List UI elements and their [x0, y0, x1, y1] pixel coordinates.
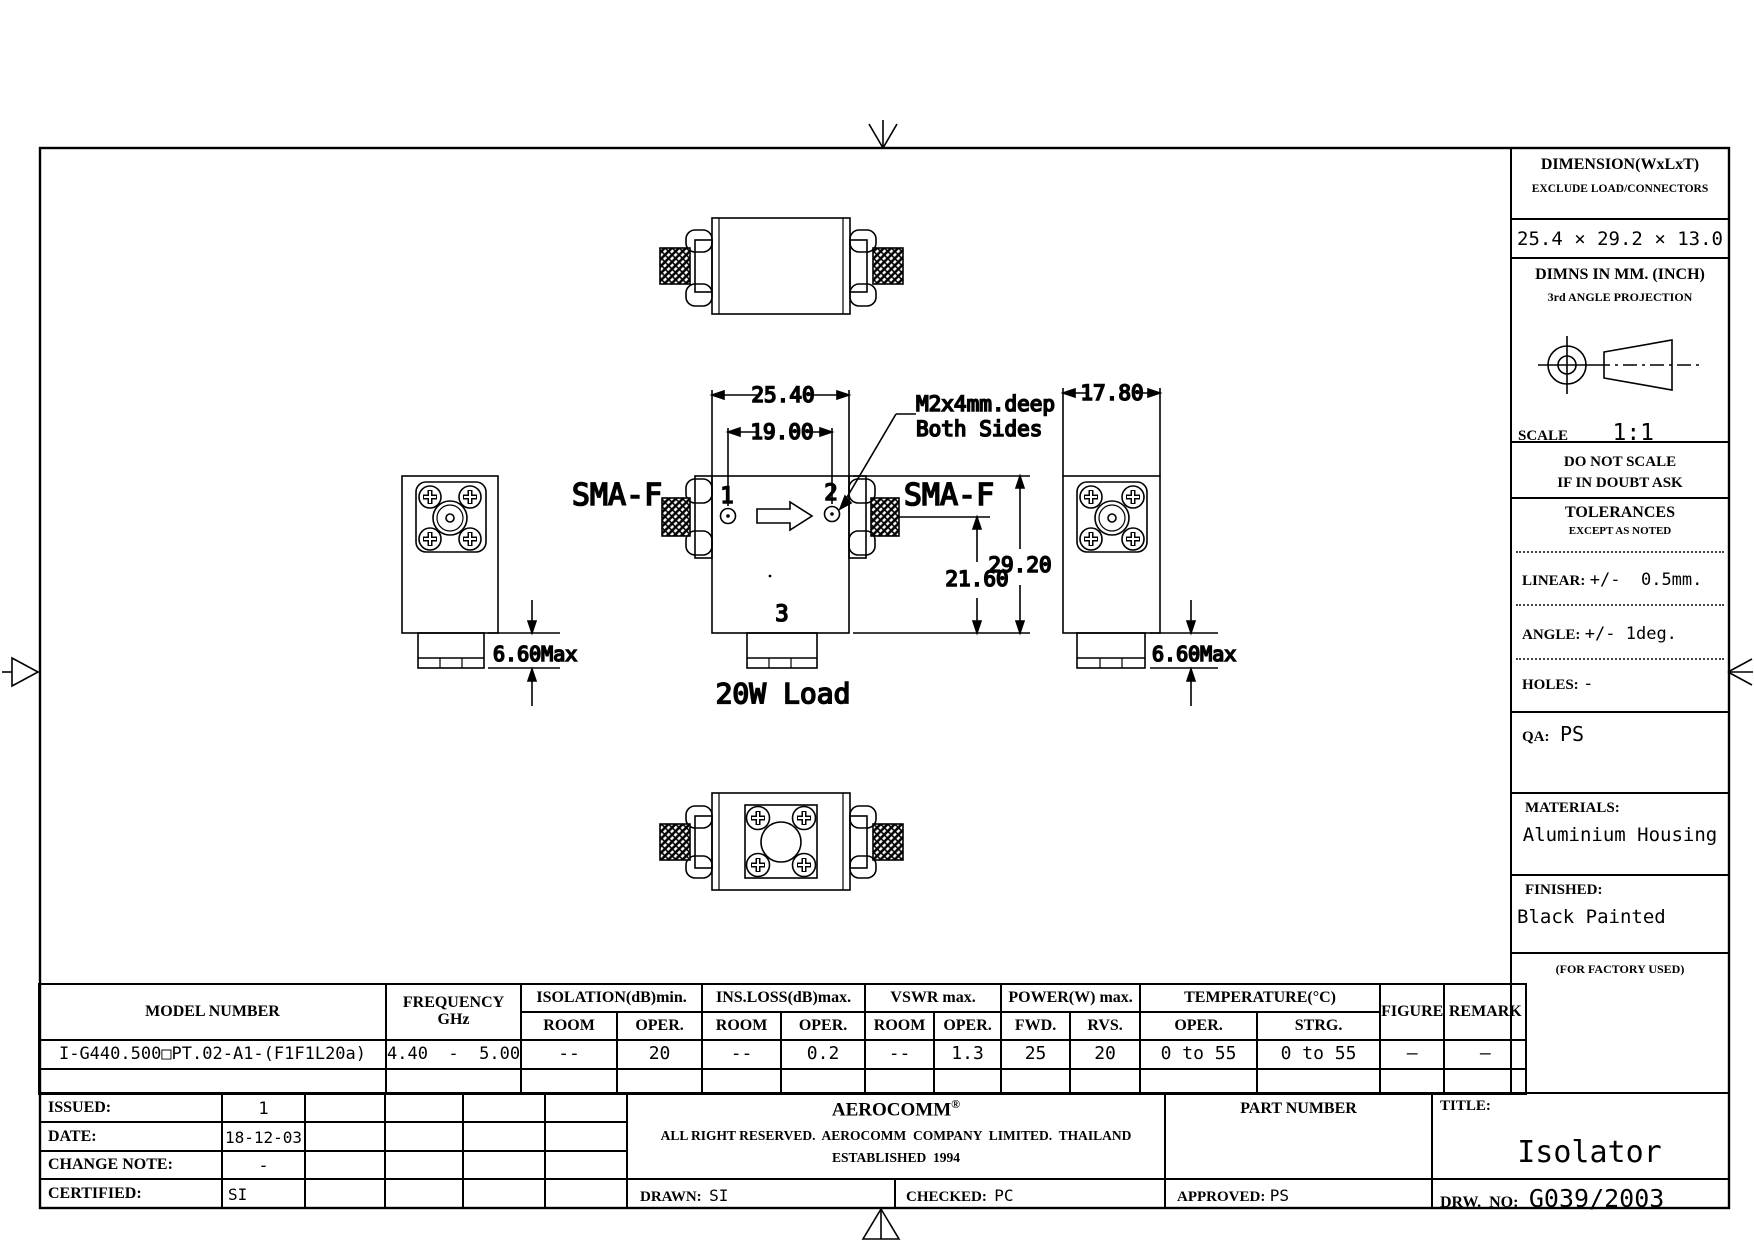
do-not-scale-line2: IF IN DOUBT ASK — [1511, 473, 1729, 494]
qa-value: PS — [1560, 722, 1584, 746]
subhead: OPER. — [617, 1012, 702, 1040]
drw-no-value: G039/2003 — [1529, 1184, 1664, 1213]
dimension-title: DIMENSION(WxLxT) — [1511, 156, 1729, 174]
issued-label: ISSUED: — [48, 1099, 111, 1117]
panel-dimns: DIMNS IN MM. (INCH) 3rd ANGLE PROJECTION — [1511, 266, 1729, 305]
centering-mark-bottom-icon — [863, 1209, 899, 1239]
col-model-number: MODEL NUMBER — [39, 984, 386, 1040]
spec-value: -- — [702, 1040, 781, 1069]
approved-row: APPROVED: PS — [1177, 1186, 1289, 1206]
dim-21-60: 21.60 — [945, 517, 1008, 633]
company-name-row: AEROCOMM® — [627, 1097, 1165, 1121]
flange-screw-icon — [1080, 486, 1144, 550]
dim-hole-spacing: 19.00 — [750, 420, 813, 444]
spec-table: MODEL NUMBER FREQUENCY GHz ISOLATION(dB)… — [38, 983, 1527, 1095]
centering-mark-top-icon — [869, 120, 897, 148]
checked-row: CHECKED: PC — [906, 1186, 1014, 1206]
port-2-label: 2 — [824, 481, 837, 506]
dim-side-width: 17.80 — [1080, 381, 1143, 405]
title-label: TITLE: — [1440, 1098, 1491, 1115]
hole-note-line1: M2x4mm.deep — [916, 392, 1055, 416]
materials-label: MATERIALS: — [1525, 800, 1729, 817]
scale-row: SCALE 1:1 — [1518, 420, 1718, 446]
dim-19-00: 19.00 — [728, 420, 832, 506]
third-angle-projection-icon — [1538, 336, 1704, 394]
frequency-value: 4.40 - 5.00 — [386, 1040, 521, 1069]
dimension-sub: EXCLUDE LOAD/CONNECTORS — [1511, 183, 1729, 195]
dim-stub-right: 6.60Max — [1152, 642, 1236, 666]
drawn-value: SI — [709, 1186, 728, 1205]
date-value: 18-12-03 — [222, 1128, 305, 1147]
qa-row: QA: PS — [1522, 722, 1584, 746]
panel-tolerances: TOLERANCES EXCEPT AS NOTED — [1511, 504, 1729, 537]
holes-value: - — [1583, 674, 1593, 694]
empty-cell — [1070, 1069, 1140, 1094]
centering-mark-right-icon — [1728, 659, 1753, 685]
empty-cell — [1001, 1069, 1070, 1094]
finished-value: Black Painted — [1517, 906, 1729, 928]
tolerances-sub: EXCEPT AS NOTED — [1511, 525, 1729, 537]
empty-cell — [39, 1069, 386, 1094]
signal-direction-arrow-icon — [757, 502, 812, 530]
figure-value: — — [1380, 1040, 1444, 1069]
dotted-divider — [1516, 604, 1724, 606]
change-note-value: - — [222, 1156, 305, 1176]
col-group-power: POWER(W) max. — [1001, 984, 1140, 1012]
load-screw-icon — [747, 807, 816, 877]
dimns-sub: 3rd ANGLE PROJECTION — [1511, 290, 1729, 305]
dim-width-outer: 25.40 — [751, 383, 814, 407]
title-value: Isolator — [1450, 1135, 1729, 1170]
materials-value: Aluminium Housing — [1511, 824, 1729, 846]
part-number-label: PART NUMBER — [1165, 1100, 1432, 1118]
dim-17-80: 17.80 — [1063, 381, 1160, 476]
dotted-divider — [1516, 551, 1724, 553]
subhead: OPER. — [781, 1012, 865, 1040]
drawing-sheet: 25.40 19.00 17.80 29.20 21.60 — [0, 0, 1754, 1240]
empty-cell — [617, 1069, 702, 1094]
subhead: ROOM — [865, 1012, 934, 1040]
linear-value: +/- 0.5mm. — [1590, 570, 1703, 590]
spec-value: 20 — [1070, 1040, 1140, 1069]
col-group-temperature: TEMPERATURE(°C) — [1140, 984, 1380, 1012]
drw-no-row: DRW. NO: G039/2003 — [1440, 1184, 1664, 1213]
empty-cell — [1380, 1069, 1444, 1094]
date-label: DATE: — [48, 1128, 97, 1146]
left-side-view — [402, 476, 498, 668]
drawn-label: DRAWN: — [640, 1189, 702, 1205]
empty-cell — [386, 1069, 521, 1094]
do-not-scale: DO NOT SCALE IF IN DOUBT ASK — [1511, 452, 1729, 494]
empty-cell — [702, 1069, 781, 1094]
model-number-value: I-G440.500□PT.02-A1-(F1F1L20a) — [39, 1040, 386, 1069]
empty-cell — [865, 1069, 934, 1094]
col-remark: REMARK — [1444, 984, 1526, 1040]
panel-dimension: DIMENSION(WxLxT) EXCLUDE LOAD/CONNECTORS — [1511, 156, 1729, 195]
spec-value: -- — [521, 1040, 617, 1069]
sma-label-left: SMA-F — [572, 478, 662, 513]
dim-6-60-left: 6.60Max — [488, 600, 577, 706]
company-line2: ESTABLISHED 1994 — [627, 1150, 1165, 1166]
centering-mark-left-icon — [2, 658, 38, 686]
finished-section: FINISHED: Black Painted — [1511, 882, 1729, 928]
subhead: OPER. — [934, 1012, 1001, 1040]
empty-cell — [521, 1069, 617, 1094]
checked-label: CHECKED: — [906, 1189, 987, 1205]
empty-cell — [781, 1069, 865, 1094]
do-not-scale-line1: DO NOT SCALE — [1511, 452, 1729, 473]
approved-label: APPROVED: — [1177, 1189, 1265, 1205]
dimns-title: DIMNS IN MM. (INCH) — [1511, 266, 1729, 284]
materials-section: MATERIALS: Aluminium Housing — [1511, 800, 1729, 846]
subhead: RVS. — [1070, 1012, 1140, 1040]
subhead: OPER. — [1140, 1012, 1257, 1040]
angle-value: +/- 1deg. — [1585, 624, 1677, 644]
right-side-view — [1063, 476, 1160, 668]
issued-value: 1 — [222, 1099, 305, 1119]
dim-6-60-right: 6.60Max — [1150, 600, 1236, 706]
spec-value: 0.2 — [781, 1040, 865, 1069]
bottom-view — [660, 793, 903, 890]
holes-label: HOLES: — [1522, 677, 1579, 693]
qa-label: QA: — [1522, 729, 1550, 745]
hole-note-line2: Both Sides — [916, 417, 1042, 441]
holes-row: HOLES: - — [1522, 674, 1593, 694]
spec-value: -- — [865, 1040, 934, 1069]
dim-center-to-bottom: 21.60 — [945, 567, 1008, 591]
checked-value: PC — [994, 1186, 1013, 1205]
angle-label: ANGLE: — [1522, 627, 1580, 643]
col-group-vswr: VSWR max. — [865, 984, 1001, 1012]
spec-value: 20 — [617, 1040, 702, 1069]
empty-cell — [1140, 1069, 1257, 1094]
empty-cell — [934, 1069, 1001, 1094]
scale-label: SCALE — [1518, 428, 1568, 444]
flange-screw-icon — [419, 486, 481, 550]
dim-stub-left: 6.60Max — [493, 642, 577, 666]
spec-value: 0 to 55 — [1257, 1040, 1380, 1069]
subhead: ROOM — [702, 1012, 781, 1040]
drw-no-label: DRW. NO: — [1440, 1194, 1518, 1211]
finished-label: FINISHED: — [1525, 882, 1729, 899]
frequency-line1: FREQUENCY — [387, 995, 520, 1012]
col-figure: FIGURE — [1380, 984, 1444, 1040]
factory-note: (FOR FACTORY USED) — [1511, 962, 1729, 977]
col-group-insloss: INS.LOSS(dB)max. — [702, 984, 865, 1012]
col-frequency: FREQUENCY GHz — [386, 984, 521, 1040]
registered-mark-icon: ® — [951, 1097, 960, 1111]
subhead: ROOM — [521, 1012, 617, 1040]
empty-cell — [1257, 1069, 1380, 1094]
sma-label-right: SMA-F — [904, 478, 994, 513]
company-name: AEROCOMM — [832, 1099, 951, 1120]
spec-value: 0 to 55 — [1140, 1040, 1257, 1069]
port-1-label: 1 — [720, 484, 733, 509]
change-note-label: CHANGE NOTE: — [48, 1156, 173, 1174]
spec-value: 25 — [1001, 1040, 1070, 1069]
subhead: FWD. — [1001, 1012, 1070, 1040]
dotted-divider — [1516, 658, 1724, 660]
col-group-isolation: ISOLATION(dB)min. — [521, 984, 702, 1012]
company-block: AEROCOMM® ALL RIGHT RESERVED. AEROCOMM C… — [627, 1097, 1165, 1166]
company-line1: ALL RIGHT RESERVED. AEROCOMM COMPANY LIM… — [627, 1128, 1165, 1144]
remark-value: — — [1444, 1040, 1526, 1069]
spec-value: 1.3 — [934, 1040, 1001, 1069]
top-view — [660, 218, 903, 314]
approved-value: PS — [1270, 1186, 1289, 1205]
linear-label: LINEAR: — [1522, 573, 1585, 589]
empty-cell — [1444, 1069, 1526, 1094]
subhead: STRG. — [1257, 1012, 1380, 1040]
drawn-row: DRAWN: SI — [640, 1186, 728, 1206]
certified-label: CERTIFIED: — [48, 1185, 142, 1203]
linear-row: LINEAR: +/- 0.5mm. — [1522, 570, 1702, 590]
load-label: 20W Load — [716, 677, 851, 710]
certified-value: SI — [228, 1185, 247, 1204]
port-3-label: 3 — [775, 602, 788, 627]
angle-row: ANGLE: +/- 1deg. — [1522, 624, 1677, 644]
frequency-line2: GHz — [387, 1012, 520, 1029]
tolerances-title: TOLERANCES — [1511, 504, 1729, 522]
scale-value: 1:1 — [1612, 420, 1654, 446]
dimension-value: 25.4 × 29.2 × 13.0 — [1511, 228, 1729, 250]
